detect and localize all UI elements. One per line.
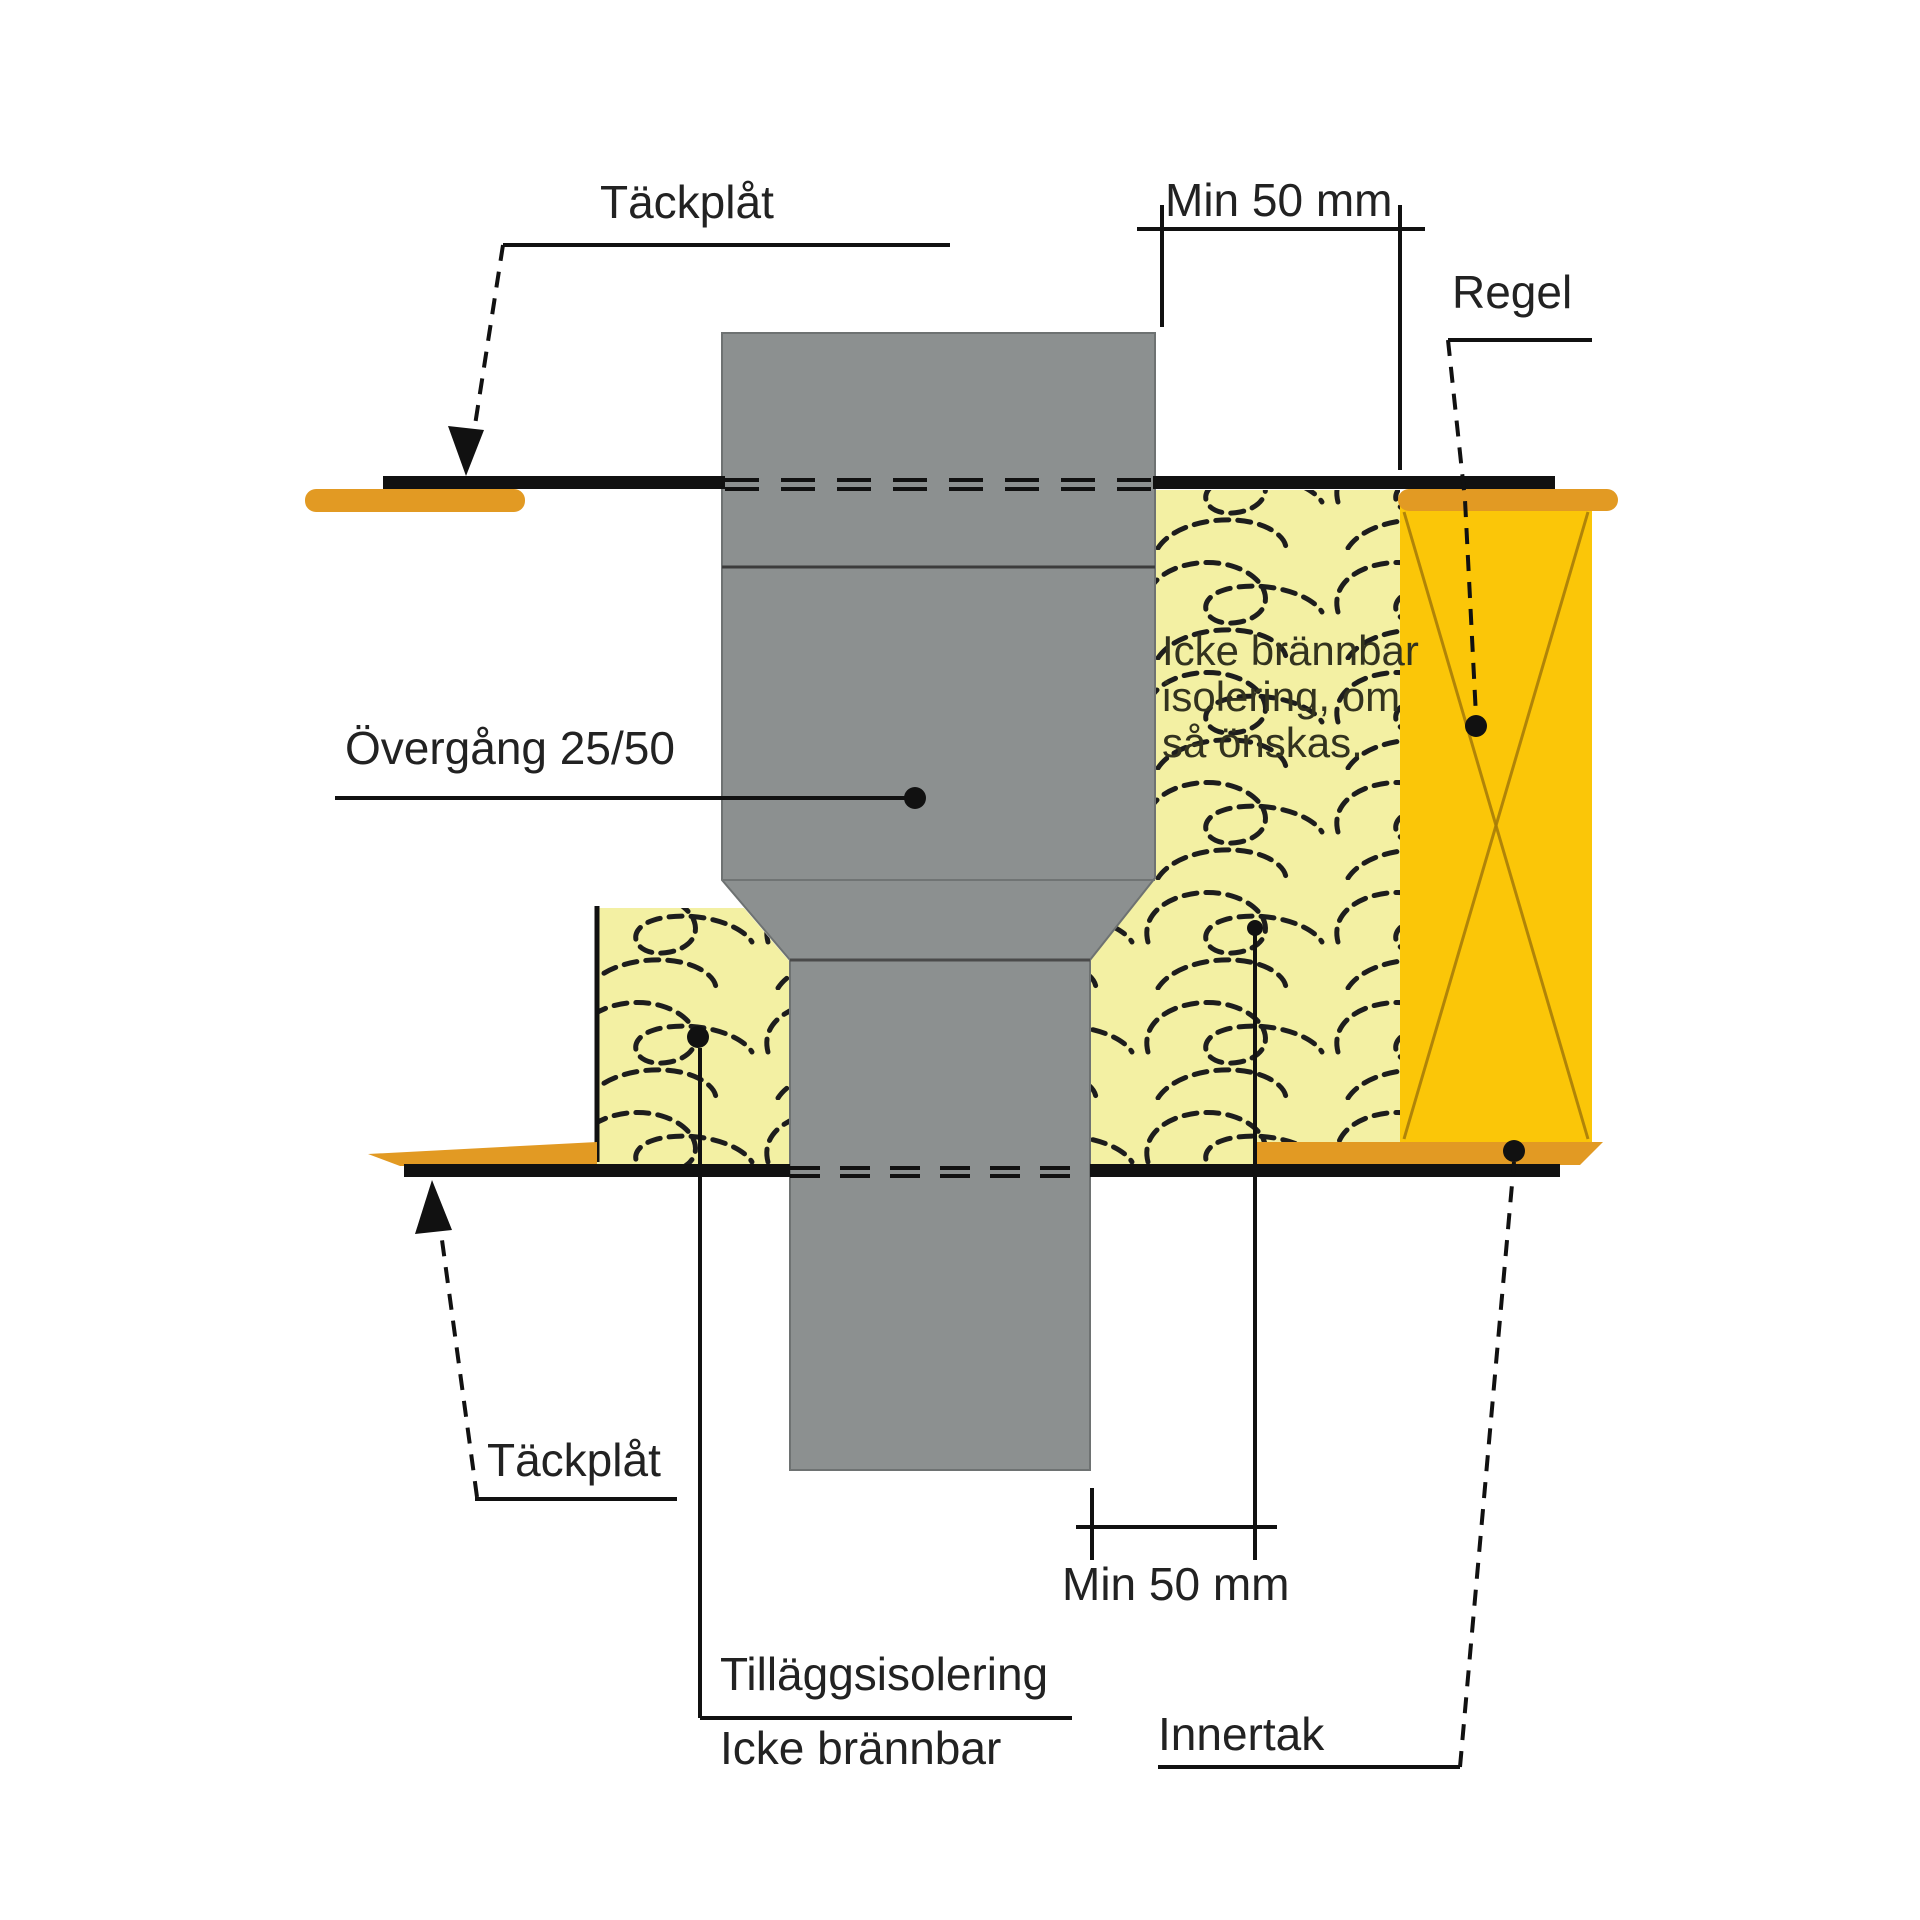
label-tillagg-line1: Tilläggsisolering [720, 1650, 1048, 1698]
label-insulation-note: Icke brännbar isolering, om så önskas. [1162, 628, 1419, 766]
cover-plate-top-left [305, 489, 525, 512]
overgang-leader-dot [904, 787, 926, 809]
tackplat-top-leader [473, 245, 503, 438]
insulation-note-line-1: Icke brännbar [1162, 628, 1419, 674]
tackplat-bottom-leader [442, 1240, 477, 1497]
cover-plate-bottom-right [1253, 1142, 1603, 1165]
label-tackplat-top: Täckplåt [600, 178, 774, 226]
label-regel: Regel [1452, 268, 1572, 316]
dim-bottom-extension-dot [1247, 920, 1263, 936]
label-min50-top: Min 50 mm [1165, 176, 1392, 224]
label-innertak: Innertak [1158, 1710, 1324, 1758]
tackplat-bottom-arrowhead [415, 1180, 452, 1234]
lower-ceiling-line-right [1090, 1164, 1560, 1177]
innertak-leader-dot [1503, 1140, 1525, 1162]
regel-leader-dot [1465, 715, 1487, 737]
upper-ceiling-line-right [1153, 476, 1555, 489]
tackplat-top-arrowhead [448, 426, 484, 476]
label-overgang: Övergång 25/50 [345, 724, 675, 772]
tillagg-leader-dot [687, 1026, 709, 1048]
cover-plate-bottom-left [368, 1142, 597, 1166]
duct-body [722, 333, 1155, 1470]
upper-ceiling-line-left [383, 476, 725, 489]
label-tackplat-bottom: Täckplåt [487, 1436, 661, 1484]
insulation-note-line-2: isolering, om [1162, 674, 1419, 720]
construction-detail-drawing [0, 0, 1920, 1920]
lower-ceiling-line-left [404, 1164, 790, 1177]
cover-plate-top-right [1398, 489, 1618, 511]
label-tillagg-line2: Icke brännbar [720, 1724, 1001, 1772]
insulation-note-line-3: så önskas. [1162, 720, 1419, 766]
innertak-leader [1460, 1162, 1514, 1767]
diagram-canvas: Täckplåt Min 50 mm Regel Övergång 25/50 … [0, 0, 1920, 1920]
label-min50-bottom: Min 50 mm [1062, 1560, 1289, 1608]
